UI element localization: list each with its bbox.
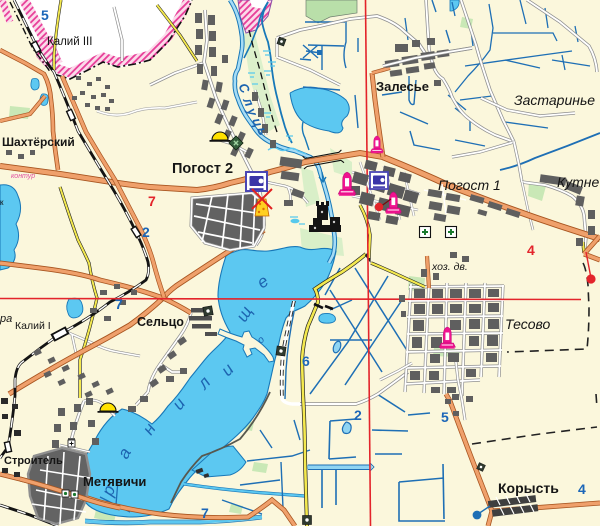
svg-text:Застаринье: Застаринье — [514, 92, 595, 108]
svg-text:6: 6 — [302, 353, 310, 369]
svg-text:Корысть: Корысть — [498, 480, 559, 496]
svg-text:4: 4 — [527, 242, 535, 258]
svg-text:ра: ра — [0, 313, 12, 325]
svg-text:7: 7 — [201, 505, 209, 521]
svg-text:к: к — [0, 198, 4, 207]
svg-text:4: 4 — [578, 481, 586, 497]
svg-text:Кутне: Кутне — [557, 174, 599, 190]
svg-text:Сельцо: Сельцо — [137, 315, 184, 329]
svg-text:5: 5 — [41, 7, 49, 23]
svg-text:5: 5 — [441, 409, 449, 425]
svg-text:2: 2 — [354, 407, 362, 423]
svg-text:контур: контур — [11, 173, 35, 180]
svg-text:Строитель: Строитель — [4, 455, 63, 467]
svg-text:Залесье: Залесье — [376, 79, 429, 94]
svg-text:Погост 2: Погост 2 — [172, 161, 233, 177]
svg-text:Погост 1: Погост 1 — [438, 177, 501, 193]
svg-text:Калий I: Калий I — [15, 320, 51, 332]
svg-text:Шахтёрский: Шахтёрский — [2, 135, 75, 149]
svg-text:7: 7 — [148, 193, 156, 209]
svg-text:7: 7 — [115, 296, 123, 312]
svg-text:Метявичи: Метявичи — [83, 474, 146, 489]
svg-text:2: 2 — [142, 224, 150, 240]
svg-text:Калий III: Калий III — [47, 36, 92, 48]
svg-text:Тесово: Тесово — [505, 316, 551, 332]
svg-text:хоз. дв.: хоз. дв. — [431, 261, 468, 273]
